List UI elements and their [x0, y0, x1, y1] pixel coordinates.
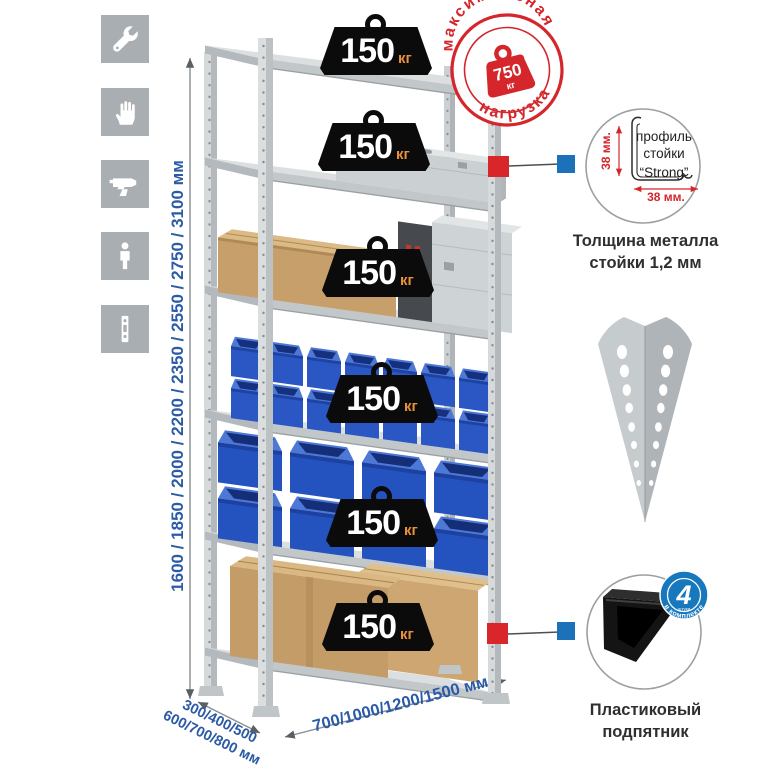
callout-top [488, 155, 575, 177]
foot-caption-line-1: Пластиковый [558, 700, 733, 722]
blue-marker-top [557, 155, 575, 173]
shelf-load-badge-2: 150кг [318, 110, 430, 172]
foot-caption-line-2: подпятник [558, 722, 733, 744]
red-marker-bottom [487, 623, 508, 644]
profile-dim-vertical: 38 мм. [599, 132, 613, 170]
corner-post-image [598, 317, 692, 522]
kit-count-badge: 4 штуки в комплекте [660, 571, 708, 620]
perforated-post-icon [101, 305, 149, 353]
profile-caption-line-1: Толщина металла [558, 231, 733, 253]
blue-marker-bottom [557, 622, 575, 640]
person-icon [101, 232, 149, 280]
profile-label-1: профиль [636, 129, 692, 144]
foot-caption: Пластиковый подпятник [558, 700, 733, 744]
shelf-load-badge-3: 150кг [322, 236, 434, 298]
height-dimension-label: 1600 / 1850 / 2000 / 2200 / 2350 / 2550 … [168, 76, 188, 676]
profile-label-2: стойки [643, 146, 684, 161]
shelf-load-badge-4: 150кг [326, 362, 438, 424]
profile-caption-line-2: стойки 1,2 мм [558, 253, 733, 275]
profile-caption: Толщина металла стойки 1,2 мм [558, 231, 733, 275]
wrench-icon [101, 15, 149, 63]
shelf-load-badge-5: 150кг [326, 486, 438, 548]
profile-label-3: “Strong” [640, 165, 689, 180]
shelf-load-badge-1: 150кг [320, 14, 432, 76]
profile-dim-horizontal: 38 мм. [647, 190, 685, 204]
profile-detail: 38 мм. 38 мм. профиль стойки “Strong” [586, 109, 700, 223]
kit-count-value: 4 [675, 580, 691, 610]
gloves-icon [101, 88, 149, 136]
red-marker-top [488, 156, 509, 177]
drill-icon [101, 160, 149, 208]
kit-count-small: штуки [678, 607, 691, 612]
callout-bottom [487, 622, 575, 644]
shelf-load-badge-6: 150кг [322, 590, 434, 652]
